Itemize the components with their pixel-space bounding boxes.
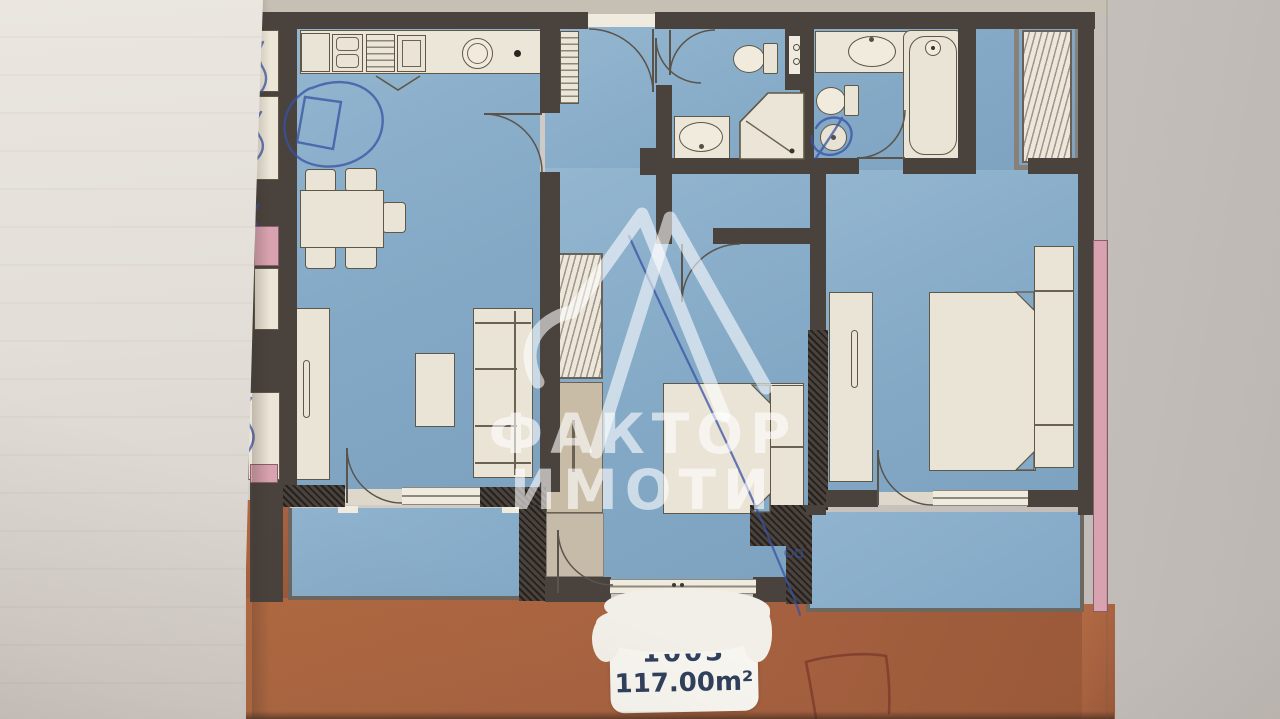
kitchen-cabinet-chevron [376,76,420,90]
shower-drain [790,149,795,154]
worn-paint-patch [596,606,766,652]
worn-paint-patch [742,604,772,662]
photo-bottom-edge [246,711,1114,719]
worn-paint-patch [592,616,620,662]
photo-right-edge [1106,0,1108,719]
floor-plan-photo: ФАКТОР ИМОТИ 1003 117.00m² [0,0,1280,719]
corner-shower [740,93,804,159]
area-value: 117.00m² [612,666,757,699]
watermark-line2: ИМОТИ [433,458,853,522]
white-paper-sheet [0,0,265,719]
watermark-line1: ФАКТОР [433,402,853,466]
red-pen-marks [806,654,889,718]
